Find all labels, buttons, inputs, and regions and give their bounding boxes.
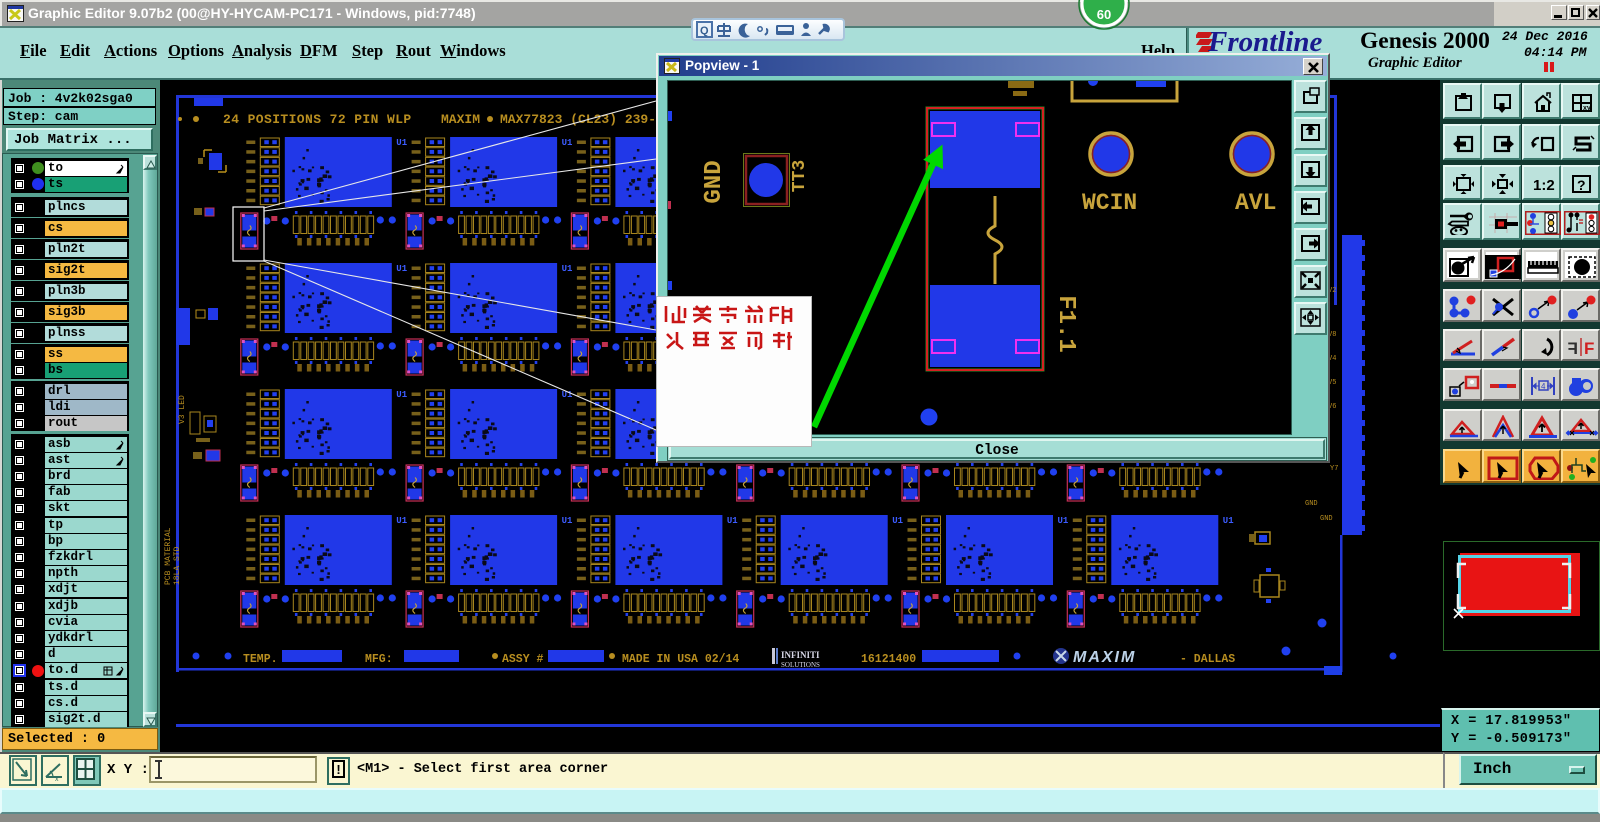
svg-text:WCIN: WCIN (1082, 190, 1137, 216)
svg-text:F: F (1584, 339, 1594, 358)
svg-text:1:2: 1:2 (1533, 177, 1555, 194)
svg-text:MADE IN USA 02/14: MADE IN USA 02/14 (622, 653, 739, 666)
svg-text:MAXIM: MAXIM (441, 112, 480, 127)
svg-text:F: F (1568, 339, 1578, 358)
svg-text:?: ? (1577, 177, 1586, 193)
svg-text:GND: GND (1320, 515, 1333, 523)
svg-text:- DALLAS: - DALLAS (1180, 653, 1235, 666)
svg-text:TEMP.: TEMP. (243, 653, 278, 666)
svg-text:Y7: Y7 (1330, 465, 1338, 473)
svg-text:MFG:: MFG: (365, 653, 393, 666)
svg-text:GND: GND (701, 160, 728, 203)
svg-text:24 POSITIONS 72 PIN WLP: 24 POSITIONS 72 PIN WLP (223, 112, 412, 127)
svg-text:PCB MATERIAL: PCB MATERIAL (164, 527, 173, 585)
svg-text:V3 LED: V3 LED (178, 395, 187, 424)
svg-text:60: 60 (1097, 7, 1111, 22)
svg-text:4: 4 (1541, 382, 1546, 391)
svg-text:SOLUTIONS: SOLUTIONS (781, 661, 820, 669)
svg-text:18LA STD: 18LA STD (173, 546, 182, 585)
svg-text:GND: GND (1305, 500, 1318, 508)
svg-text:F1.1: F1.1 (1052, 295, 1079, 353)
svg-text:INFINITI: INFINITI (781, 650, 820, 660)
svg-text:x: x (55, 776, 59, 782)
svg-text:AVL: AVL (1235, 190, 1276, 216)
svg-text:MAX77823 (CL23) 239-L: MAX77823 (CL23) 239-L (500, 112, 664, 127)
svg-text:16121400: 16121400 (861, 653, 916, 666)
svg-text:xy: xy (1583, 105, 1591, 112)
svg-text:ASSY #: ASSY # (502, 653, 544, 666)
svg-text:Frontline: Frontline (1207, 26, 1323, 54)
svg-text:MAXIM: MAXIM (1073, 649, 1136, 666)
svg-text:Q: Q (700, 25, 709, 37)
svg-text:TT3: TT3 (790, 160, 810, 192)
